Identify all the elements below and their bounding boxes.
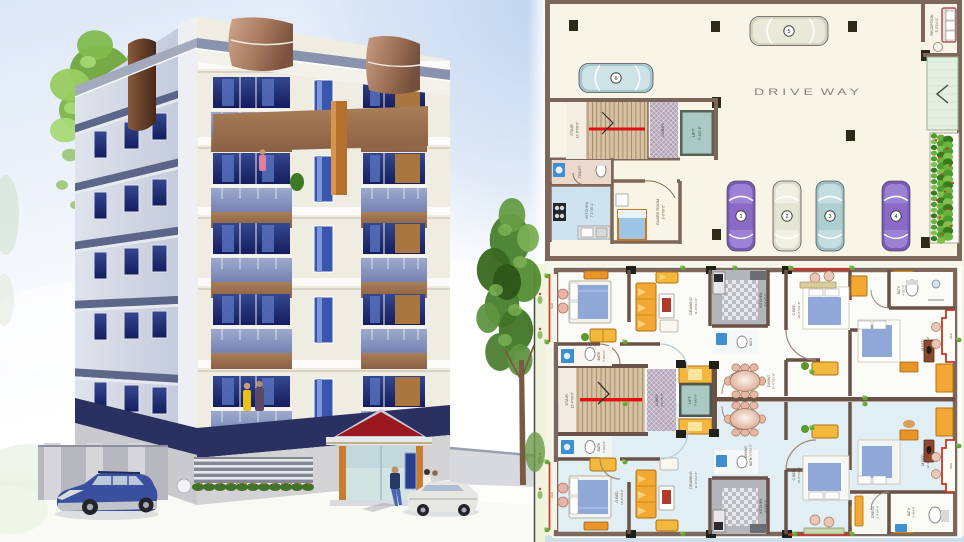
svg-text:11'-0"X11'-0": 11'-0"X11'-0" xyxy=(694,472,698,489)
svg-text:10'-9"X9'-0": 10'-9"X9'-0" xyxy=(620,489,624,505)
svg-text:3: 3 xyxy=(828,214,831,220)
svg-text:LOBBY: LOBBY xyxy=(655,393,659,406)
svg-text:4: 4 xyxy=(894,214,897,220)
svg-text:BATH: BATH xyxy=(749,337,753,346)
svg-text:VER: VER xyxy=(550,303,554,309)
svg-text:LIFT: LIFT xyxy=(688,395,692,403)
svg-text:DRAWING: DRAWING xyxy=(689,471,693,488)
svg-text:5: 5 xyxy=(787,29,790,35)
svg-text:DINING: DINING xyxy=(767,375,771,387)
svg-text:RECEPTION: RECEPTION xyxy=(930,14,934,35)
svg-text:VER: VER xyxy=(949,463,953,469)
svg-text:4'-0"X8'-0": 4'-0"X8'-0" xyxy=(660,393,664,407)
svg-text:BATH: BATH xyxy=(597,351,601,360)
svg-text:5'-4X4'-6": 5'-4X4'-6" xyxy=(912,506,916,517)
svg-text:D R I V E W A Y: D R I V E W A Y xyxy=(754,87,859,97)
svg-text:C.BED: C.BED xyxy=(792,304,796,315)
svg-text:LOBBY: LOBBY xyxy=(660,123,665,137)
svg-text:12'-8"X8'-0": 12'-8"X8'-0" xyxy=(576,122,580,139)
svg-text:KITCHEN: KITCHEN xyxy=(759,498,763,513)
svg-text:4'-0X7'-6": 4'-0X7'-6" xyxy=(902,284,906,295)
svg-text:10'-0"X11'-6": 10'-0"X11'-6" xyxy=(797,466,801,483)
svg-text:5'-4X5'-6": 5'-4X5'-6" xyxy=(698,126,702,140)
svg-text:12'-4"X8'-0": 12'-4"X8'-0" xyxy=(571,392,575,409)
svg-text:C.BED: C.BED xyxy=(792,469,796,480)
svg-text:5'-4"X4'-6": 5'-4"X4'-6" xyxy=(876,505,880,518)
svg-text:7'-1"X8'-1": 7'-1"X8'-1" xyxy=(590,203,594,218)
svg-text:DINING: DINING xyxy=(744,446,748,458)
svg-text:11'-0"X11'-0": 11'-0"X11'-0" xyxy=(694,298,698,315)
svg-text:BATH: BATH xyxy=(597,442,601,451)
svg-text:TOILET: TOILET xyxy=(578,165,582,178)
svg-text:GUARD ROOM: GUARD ROOM xyxy=(656,199,660,226)
svg-text:KITCHEN: KITCHEN xyxy=(585,201,589,218)
svg-text:BATH: BATH xyxy=(907,507,911,516)
svg-text:KITCHEN: KITCHEN xyxy=(759,292,763,307)
svg-text:7'-0X3'-0": 7'-0X3'-0" xyxy=(602,350,606,362)
svg-text:10'-0"X13'-0": 10'-0"X13'-0" xyxy=(749,444,753,460)
svg-text:2: 2 xyxy=(785,214,788,220)
svg-text:10'-0"X13'-0": 10'-0"X13'-0" xyxy=(772,373,776,389)
svg-text:STAIR: STAIR xyxy=(569,124,574,136)
svg-text:G.BED: G.BED xyxy=(615,491,619,503)
svg-text:5'-6X5'-6": 5'-6X5'-6" xyxy=(694,394,698,406)
svg-text:VER: VER xyxy=(949,333,953,339)
svg-text:7'-0X3'-0": 7'-0X3'-0" xyxy=(602,441,606,453)
svg-text:LIFT: LIFT xyxy=(691,128,696,137)
svg-text:5'-0"X4'-0": 5'-0"X4'-0" xyxy=(935,18,939,33)
svg-text:STAIR: STAIR xyxy=(564,394,569,406)
svg-text:10'-0"X11'-6": 10'-0"X11'-6" xyxy=(797,301,801,318)
svg-text:VER: VER xyxy=(550,492,554,498)
svg-text:DRAWING: DRAWING xyxy=(689,297,693,314)
svg-text:9'-0"X8'-0": 9'-0"X8'-0" xyxy=(662,205,666,220)
svg-text:1: 1 xyxy=(739,214,742,220)
svg-text:BATH: BATH xyxy=(897,285,901,294)
svg-text:6: 6 xyxy=(614,76,617,82)
